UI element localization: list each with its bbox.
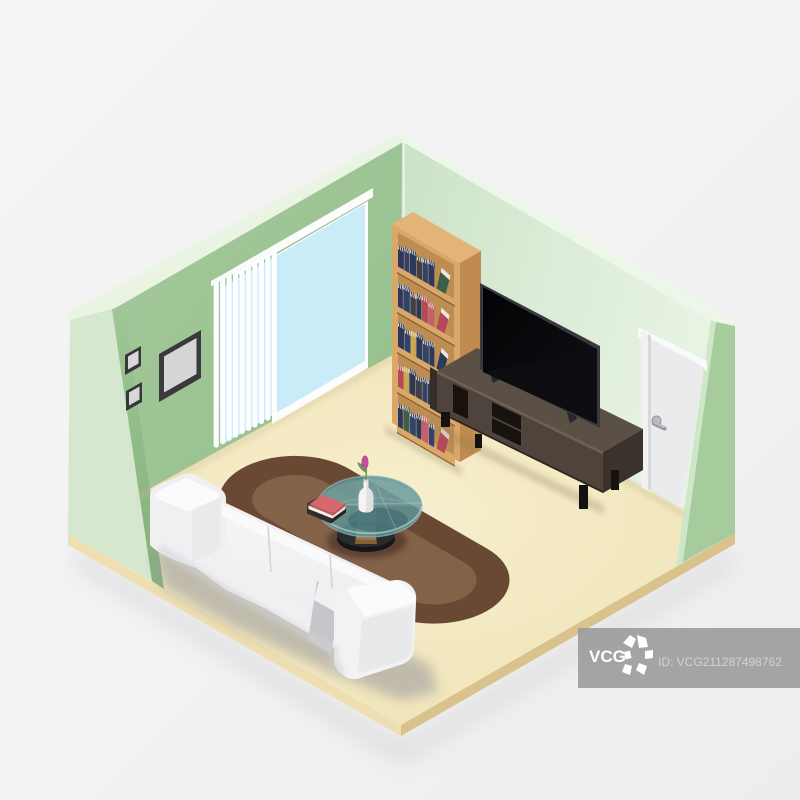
svg-text:ID: VCG211287498762: ID: VCG211287498762 xyxy=(658,655,782,669)
svg-text:VCG: VCG xyxy=(589,647,626,666)
